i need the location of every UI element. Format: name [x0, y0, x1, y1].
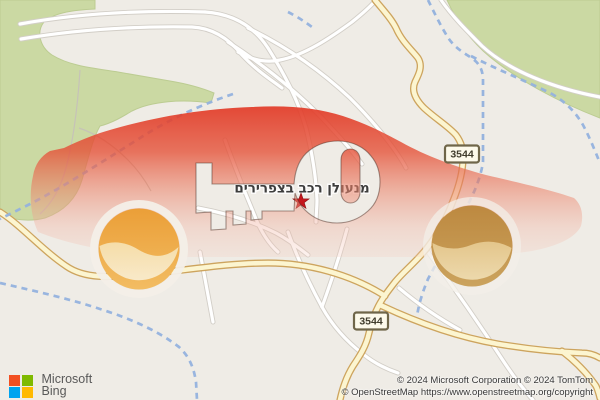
bing-logo[interactable]: Microsoft Bing — [9, 373, 92, 399]
copyright-notice: © 2024 Microsoft Corporation © 2024 TomT… — [342, 375, 594, 398]
map-render-layer: מנעולן רכב בצפרירים 3544 — [0, 0, 600, 400]
microsoft-logo-square-yellow — [22, 387, 33, 398]
logo-text-microsoft: Microsoft — [42, 373, 93, 385]
copyright-line-1: © 2024 Microsoft Corporation © 2024 TomT… — [342, 375, 594, 387]
map-canvas[interactable]: מנעולן רכב בצפרירים 3544 — [0, 0, 600, 400]
microsoft-logo-square-blue — [9, 387, 20, 398]
microsoft-logo-icon — [9, 375, 33, 399]
front-wheel — [99, 209, 180, 290]
route-shield-north: 3544 — [445, 146, 479, 163]
rear-wheel — [432, 206, 513, 287]
route-shield-north-label: 3544 — [450, 149, 474, 161]
route-shield-south-label: 3544 — [359, 316, 383, 328]
route-shield-south: 3544 — [354, 313, 388, 330]
microsoft-logo-square-green — [22, 375, 33, 386]
logo-text-bing: Bing — [42, 385, 93, 397]
microsoft-logo-square-red — [9, 375, 20, 386]
copyright-line-2: © OpenStreetMap https://www.openstreetma… — [342, 387, 594, 399]
